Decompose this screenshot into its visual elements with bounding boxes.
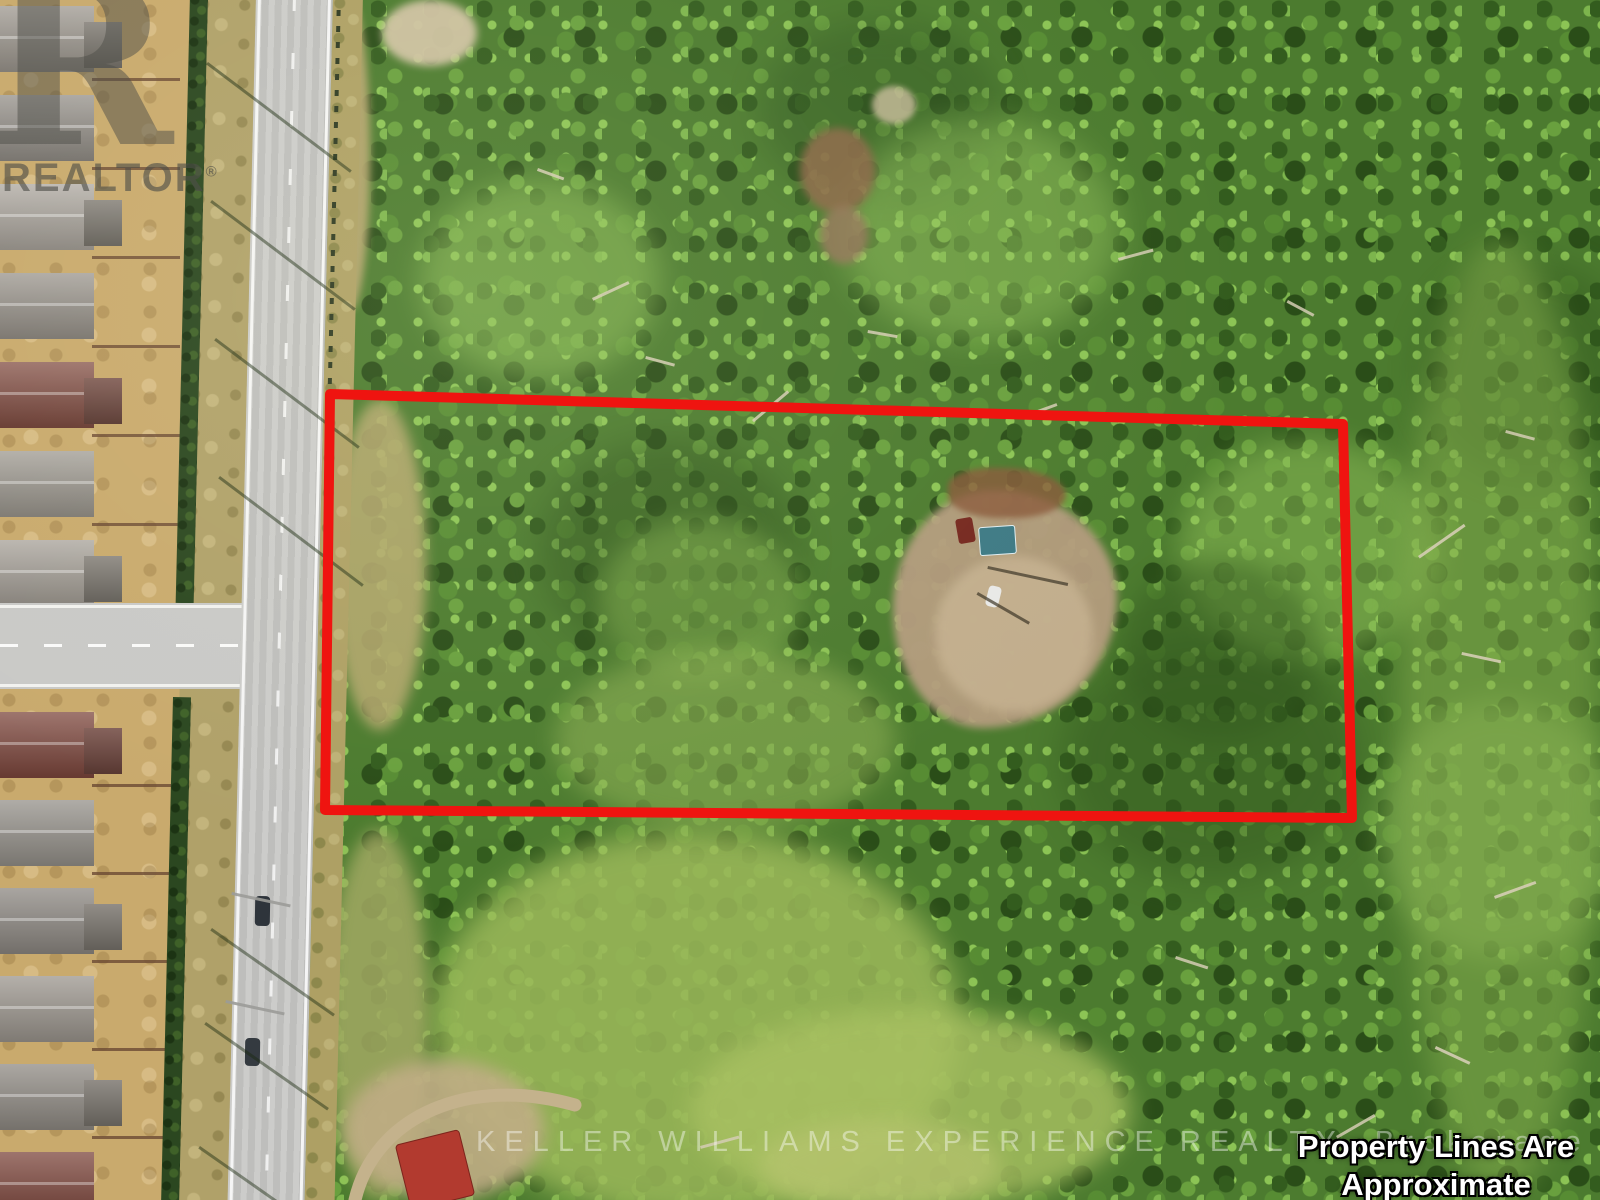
property-lines-disclaimer: Property Lines Are Approximate For Refer… <box>1278 1128 1594 1200</box>
realtor-watermark-text: REALTOR <box>2 156 206 200</box>
disclaimer-line-1: Property Lines Are Approximate <box>1278 1128 1594 1200</box>
realtor-watermark: REALTOR® <box>2 156 219 201</box>
sunlight-overlay <box>0 0 1600 1200</box>
aerial-photo: R REALTOR® KELLER WILLIAMS EXPERIENCE RE… <box>0 0 1600 1200</box>
realtor-logo-icon: R <box>0 0 173 179</box>
registered-trademark-symbol: ® <box>206 164 219 181</box>
